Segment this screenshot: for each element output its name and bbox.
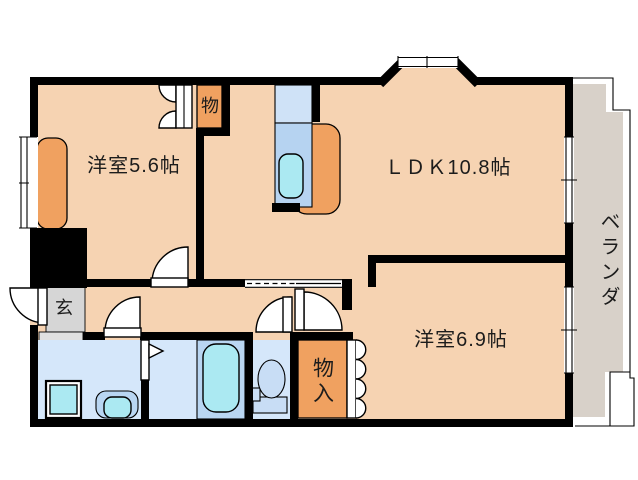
bathroom-sink <box>96 391 138 418</box>
door-entrance <box>10 288 47 325</box>
room-label-veranda: ベランダ <box>598 211 618 311</box>
stove <box>272 203 300 212</box>
veranda-step-line <box>610 372 630 426</box>
refrigerator-space <box>275 85 312 123</box>
room-label-western2: 洋室6.9帖 <box>414 330 508 350</box>
washing-machine <box>46 381 81 418</box>
room-label-ldk: ＬＤＫ10.8帖 <box>385 158 512 178</box>
room-label-storage: 物入 <box>312 357 333 407</box>
sliding-door <box>245 279 342 288</box>
bathtub <box>197 340 245 419</box>
pipe-shaft <box>30 228 87 288</box>
floorplan-drawing <box>0 0 638 480</box>
bedroom1-counter <box>37 138 67 229</box>
floorplan: 洋室5.6帖 ＬＤＫ10.8帖 洋室6.9帖 ベランダ 玄 物 物入 <box>0 0 638 480</box>
room-label-western1: 洋室5.6帖 <box>87 156 181 176</box>
folding-door <box>347 340 356 418</box>
room-label-entrance: 玄 <box>55 299 73 317</box>
room-label-closet: 物 <box>201 97 219 115</box>
kitchen-sink <box>279 154 303 198</box>
window-left <box>19 137 38 228</box>
